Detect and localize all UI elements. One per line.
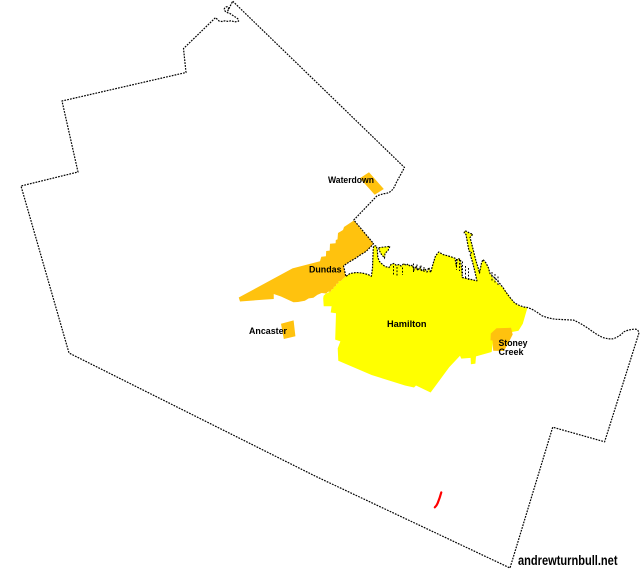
svg-text:Waterdown: Waterdown (328, 175, 374, 186)
svg-text:Creek: Creek (499, 347, 525, 358)
svg-text:Ancaster: Ancaster (249, 326, 287, 337)
svg-text:andrewturnbull.net: andrewturnbull.net (518, 553, 618, 568)
svg-text:Dundas: Dundas (309, 265, 342, 276)
svg-text:Hamilton: Hamilton (387, 319, 427, 330)
